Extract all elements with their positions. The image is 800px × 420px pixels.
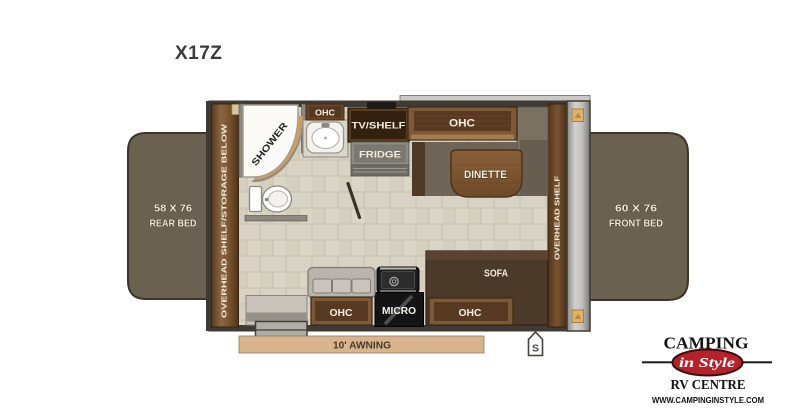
- svg-text:OVERHEAD SHELF: OVERHEAD SHELF: [553, 175, 562, 260]
- svg-text:OHC: OHC: [449, 118, 475, 130]
- svg-text:60 X 76: 60 X 76: [615, 203, 657, 215]
- svg-text:OHC: OHC: [315, 108, 335, 118]
- svg-text:OHC: OHC: [459, 308, 482, 319]
- svg-text:58 X 76: 58 X 76: [154, 203, 192, 215]
- svg-text:SOFA: SOFA: [484, 268, 508, 280]
- svg-text:DINETTE: DINETTE: [464, 169, 507, 181]
- svg-text:RV CENTRE: RV CENTRE: [671, 377, 746, 392]
- svg-text:WWW.CAMPINGINSTYLE.COM: WWW.CAMPINGINSTYLE.COM: [652, 395, 764, 405]
- svg-text:FRIDGE: FRIDGE: [359, 150, 401, 161]
- svg-text:TV/SHELF: TV/SHELF: [352, 121, 406, 132]
- svg-text:MICRO: MICRO: [382, 305, 416, 317]
- svg-text:X17Z: X17Z: [175, 43, 222, 64]
- svg-text:10' AWNING: 10' AWNING: [333, 341, 391, 352]
- svg-text:S: S: [532, 343, 539, 355]
- svg-text:OHC: OHC: [330, 308, 353, 319]
- svg-text:REAR BED: REAR BED: [150, 218, 197, 230]
- svg-text:FRONT BED: FRONT BED: [609, 218, 663, 230]
- svg-text:in Style: in Style: [679, 356, 735, 371]
- svg-text:OVERHEAD SHELF/STORAGE BELOW: OVERHEAD SHELF/STORAGE BELOW: [220, 123, 229, 318]
